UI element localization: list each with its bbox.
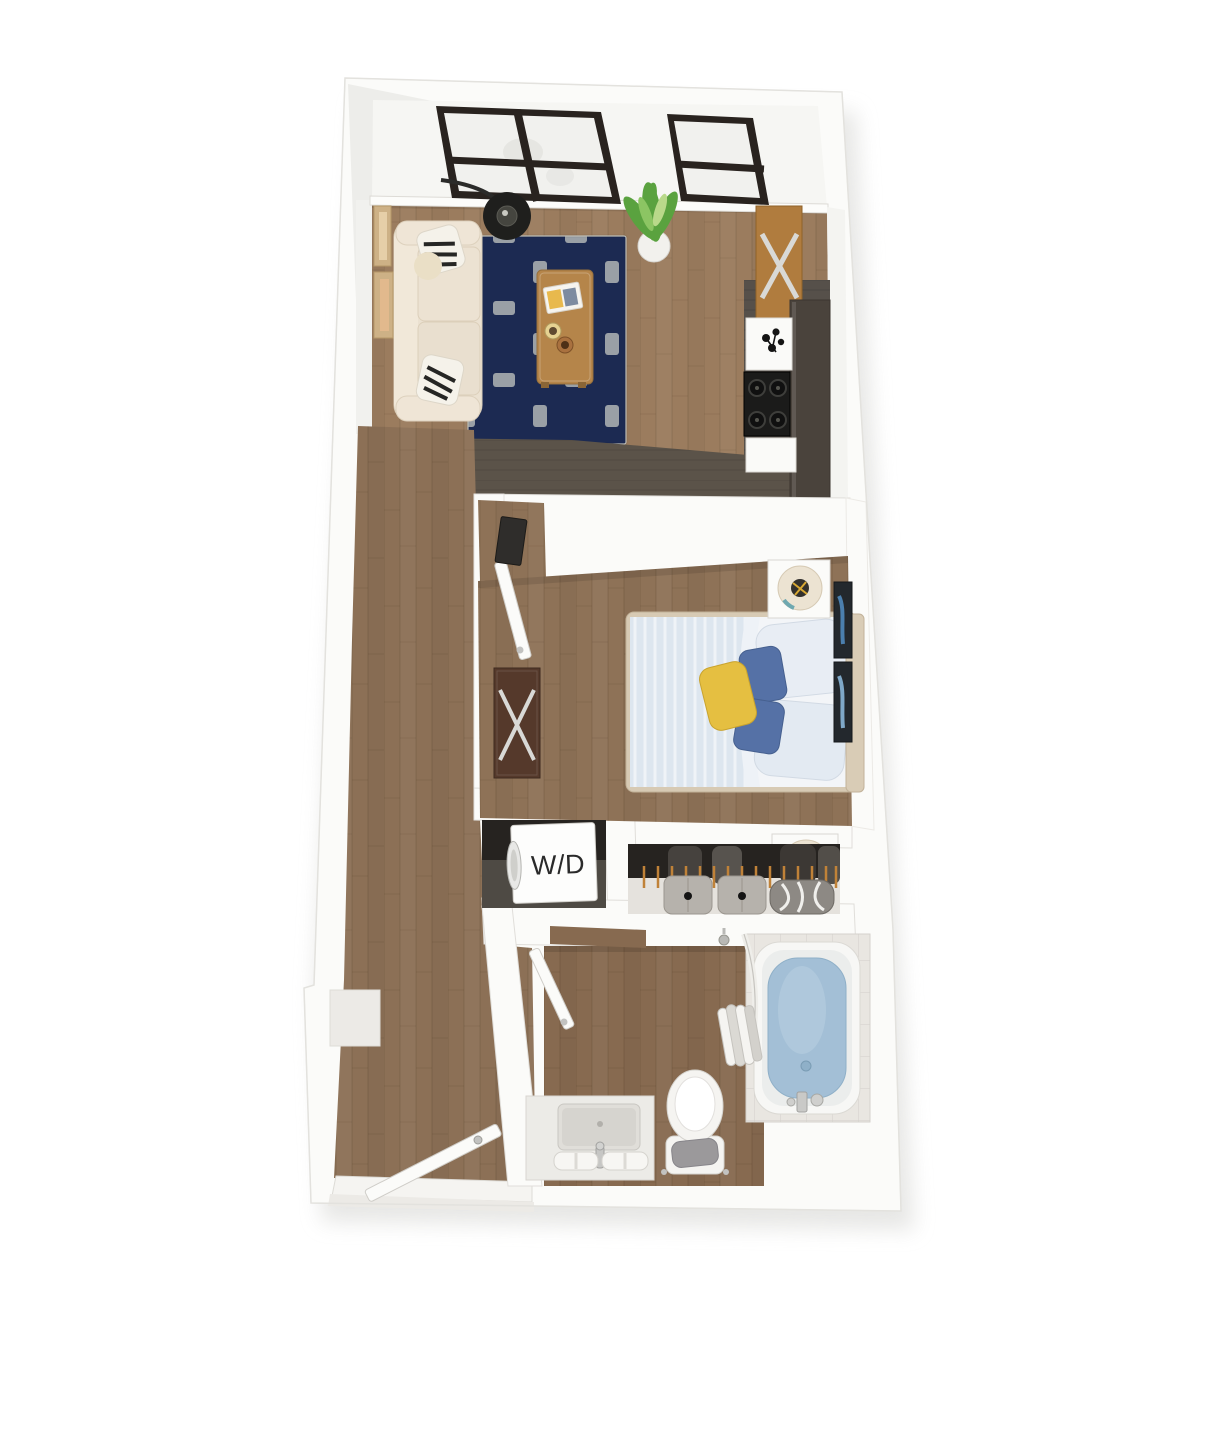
vanity: [526, 1096, 654, 1180]
bed: [626, 612, 864, 792]
throw-pillow-blush: [414, 252, 442, 280]
sink-drain: [597, 1121, 603, 1127]
magazine: [543, 282, 583, 314]
wd-label: W/D: [531, 849, 586, 881]
storage-bin-1: [664, 876, 712, 914]
closet: [628, 844, 840, 914]
table-leg: [541, 382, 549, 388]
duffel-bag: [770, 880, 834, 914]
floorplan-canvas: W/D: [0, 0, 1220, 1440]
table-leg: [578, 382, 586, 388]
sofa-back: [394, 228, 418, 414]
nightstand-1: [768, 560, 830, 618]
tub-drain: [801, 1061, 811, 1071]
bin-knob: [684, 892, 692, 900]
kitchen-cabinet-upper: [746, 318, 792, 370]
living-wall-art: [374, 206, 393, 338]
kitchen-cabinet-lower: [746, 438, 796, 472]
stove: [744, 372, 790, 436]
bathtub-area: [746, 934, 870, 1122]
entry-door-knob: [474, 1136, 482, 1144]
bedroom-wall-art: [834, 582, 852, 742]
toilet-bolt: [661, 1169, 667, 1175]
shower-head: [719, 935, 729, 945]
throw-pillow-striped-2: [415, 353, 466, 407]
bathroom-door-knob: [561, 1019, 568, 1026]
laundry-closet: W/D: [482, 820, 606, 908]
window-1: [436, 106, 621, 204]
hallway-wall-niche: [330, 990, 380, 1046]
bedroom-door-knob: [517, 647, 524, 654]
floorplan-svg: W/D: [0, 0, 1220, 1440]
toilet-bolt: [723, 1169, 729, 1175]
washer-dryer-unit: W/D: [506, 823, 598, 904]
window-2: [667, 114, 769, 205]
window-2-glass: [674, 121, 760, 198]
west-wall-band: [356, 200, 374, 434]
bin-knob: [738, 892, 746, 900]
coffee-table: [537, 270, 593, 388]
storage-bin-2: [718, 876, 766, 914]
dresser: [494, 668, 540, 778]
sofa: [394, 221, 482, 421]
toilet-towel: [671, 1138, 719, 1169]
